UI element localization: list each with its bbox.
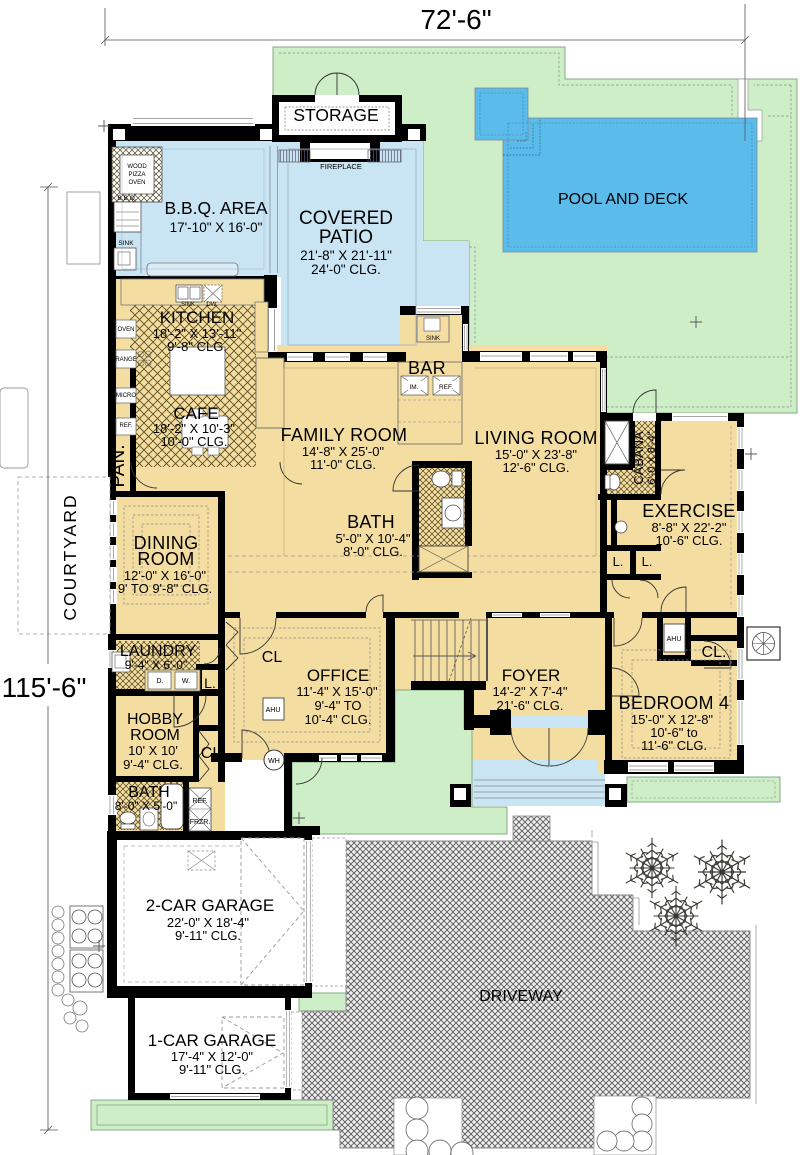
svg-text:OVEN: OVEN — [128, 180, 145, 186]
svg-text:10'-4" CLG.: 10'-4" CLG. — [304, 712, 371, 727]
svg-text:12'-6" CLG.: 12'-6" CLG. — [502, 460, 569, 475]
svg-text:BATH: BATH — [347, 512, 395, 532]
svg-text:D.: D. — [157, 678, 164, 685]
svg-text:ROOM: ROOM — [130, 727, 180, 744]
svg-text:8'-0" CLG.: 8'-0" CLG. — [343, 544, 403, 559]
svg-text:SINK: SINK — [181, 302, 195, 308]
svg-text:21'-6" CLG.: 21'-6" CLG. — [496, 698, 563, 713]
svg-text:L.: L. — [204, 675, 216, 691]
svg-text:11'-6" CLG.: 11'-6" CLG. — [641, 738, 707, 753]
svg-text:9'-4" X 6'-0": 9'-4" X 6'-0" — [125, 658, 187, 672]
svg-text:2-CAR GARAGE: 2-CAR GARAGE — [146, 896, 274, 915]
svg-text:DW.: DW. — [206, 302, 218, 308]
svg-text:9'-4" CLG.: 9'-4" CLG. — [123, 757, 183, 772]
svg-text:10' X 10': 10' X 10' — [128, 743, 178, 758]
svg-text:9'-11" CLG.: 9'-11" CLG. — [179, 1062, 245, 1077]
svg-text:SINK: SINK — [426, 336, 440, 342]
svg-text:L.: L. — [613, 554, 624, 569]
svg-text:BEDROOM 4: BEDROOM 4 — [619, 693, 730, 713]
svg-text:STORAGE: STORAGE — [293, 105, 378, 125]
svg-text:SINK: SINK — [118, 240, 134, 247]
svg-text:B.B.Q.: B.B.Q. — [117, 195, 136, 202]
svg-text:9'-4" TO: 9'-4" TO — [314, 698, 361, 713]
svg-text:WOOD: WOOD — [127, 164, 147, 170]
svg-text:AHU: AHU — [266, 707, 281, 714]
svg-text:ROOM: ROOM — [137, 549, 194, 569]
svg-text:14'-2" X 7'-4": 14'-2" X 7'-4" — [493, 684, 568, 699]
svg-text:10'-6" CLG.: 10'-6" CLG. — [655, 533, 722, 548]
svg-text:BAR: BAR — [408, 358, 446, 378]
svg-text:WH: WH — [268, 758, 280, 765]
svg-text:17'-10" X 16'-0": 17'-10" X 16'-0" — [170, 220, 263, 235]
svg-text:FIREPLACE: FIREPLACE — [320, 162, 362, 171]
svg-text:1-CAR GARAGE: 1-CAR GARAGE — [148, 1031, 276, 1050]
svg-text:PAN.: PAN. — [108, 445, 129, 488]
svg-text:CL.: CL. — [702, 644, 727, 661]
svg-text:FOYER: FOYER — [502, 666, 561, 685]
svg-text:IM.: IM. — [409, 384, 418, 391]
svg-text:COURTYARD: COURTYARD — [60, 493, 80, 620]
svg-text:B.B.Q. AREA: B.B.Q. AREA — [164, 198, 267, 218]
svg-text:POOL AND DECK: POOL AND DECK — [558, 191, 688, 208]
svg-text:21'-8" X 21'-11": 21'-8" X 21'-11" — [300, 248, 392, 263]
svg-text:OVEN: OVEN — [117, 327, 134, 333]
svg-text:11'-0" CLG.: 11'-0" CLG. — [310, 457, 376, 472]
svg-text:24'-0" CLG.: 24'-0" CLG. — [311, 262, 381, 277]
svg-text:EXERCISE: EXERCISE — [642, 501, 735, 521]
svg-text:PATIO: PATIO — [319, 227, 373, 248]
svg-text:PIZZA: PIZZA — [128, 172, 145, 178]
svg-text:REF.: REF. — [119, 423, 132, 429]
svg-text:CL: CL — [201, 745, 222, 762]
svg-text:W.: W. — [182, 678, 190, 685]
svg-text:9'-11" CLG.: 9'-11" CLG. — [175, 928, 241, 943]
svg-text:AHU: AHU — [667, 636, 682, 643]
svg-text:L.: L. — [642, 554, 653, 569]
svg-text:CL: CL — [262, 649, 283, 666]
svg-text:DRIVEWAY: DRIVEWAY — [479, 988, 563, 1005]
svg-text:COVERED: COVERED — [299, 208, 393, 229]
svg-text:11'-4" X 15'-0": 11'-4" X 15'-0" — [296, 684, 378, 699]
svg-text:REF.: REF. — [192, 798, 207, 805]
svg-text:MICRO: MICRO — [116, 393, 136, 399]
svg-text:9'-8" CLG.: 9'-8" CLG. — [167, 339, 227, 354]
svg-text:LIVING ROOM: LIVING ROOM — [474, 428, 597, 448]
svg-text:FAMILY ROOM: FAMILY ROOM — [281, 425, 408, 445]
svg-text:6'-0 X 8'-4": 6'-0 X 8'-4" — [646, 431, 658, 484]
svg-text:HOBBY: HOBBY — [127, 711, 183, 728]
svg-text:9' TO 9'-8" CLG.: 9' TO 9'-8" CLG. — [118, 581, 212, 596]
svg-text:115'-6": 115'-6" — [2, 672, 87, 703]
svg-text:FRZR.: FRZR. — [190, 819, 211, 826]
svg-text:OFFICE: OFFICE — [307, 666, 369, 685]
svg-text:KITCHEN: KITCHEN — [160, 308, 235, 327]
svg-text:RANGE: RANGE — [115, 357, 136, 363]
svg-text:72'-6": 72'-6" — [420, 4, 491, 35]
svg-text:REF.: REF. — [439, 384, 453, 391]
svg-text:10'-0" CLG.: 10'-0" CLG. — [160, 434, 227, 449]
svg-text:8'-0" X 5'-0": 8'-0" X 5'-0" — [115, 799, 177, 813]
svg-text:CABANA: CABANA — [631, 431, 646, 485]
